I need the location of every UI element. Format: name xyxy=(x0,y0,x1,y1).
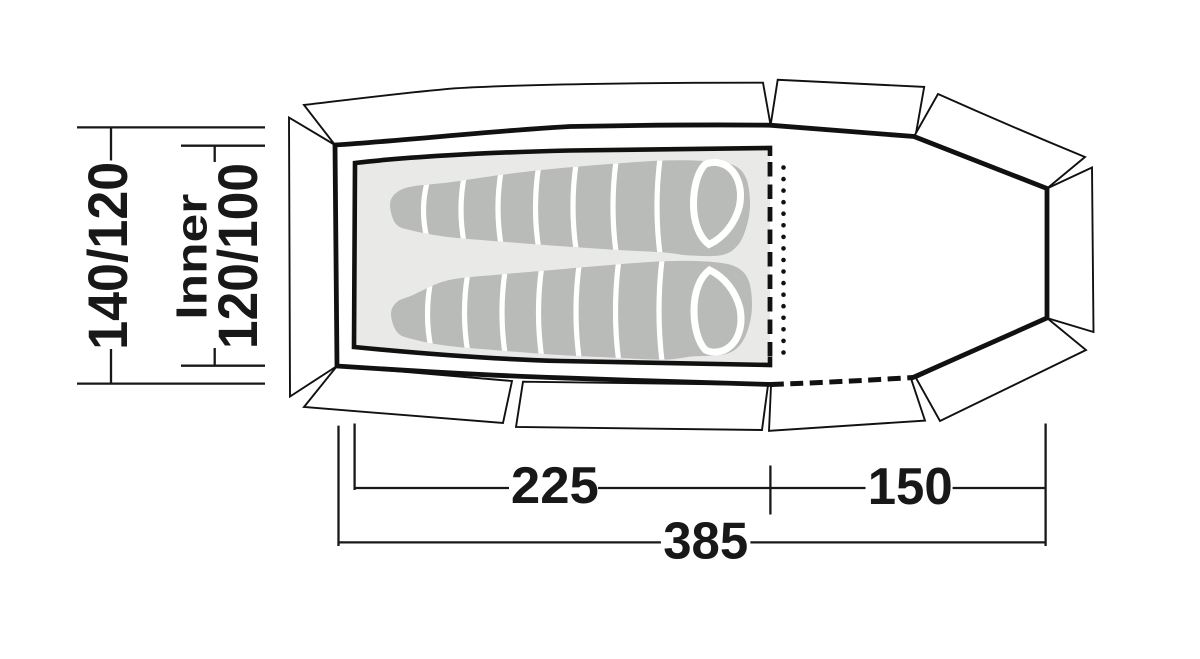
svg-text:120/100: 120/100 xyxy=(207,163,269,349)
svg-text:140/120: 140/120 xyxy=(77,162,139,350)
svg-text:225: 225 xyxy=(511,457,599,515)
svg-text:385: 385 xyxy=(663,513,748,571)
svg-text:150: 150 xyxy=(868,458,953,516)
